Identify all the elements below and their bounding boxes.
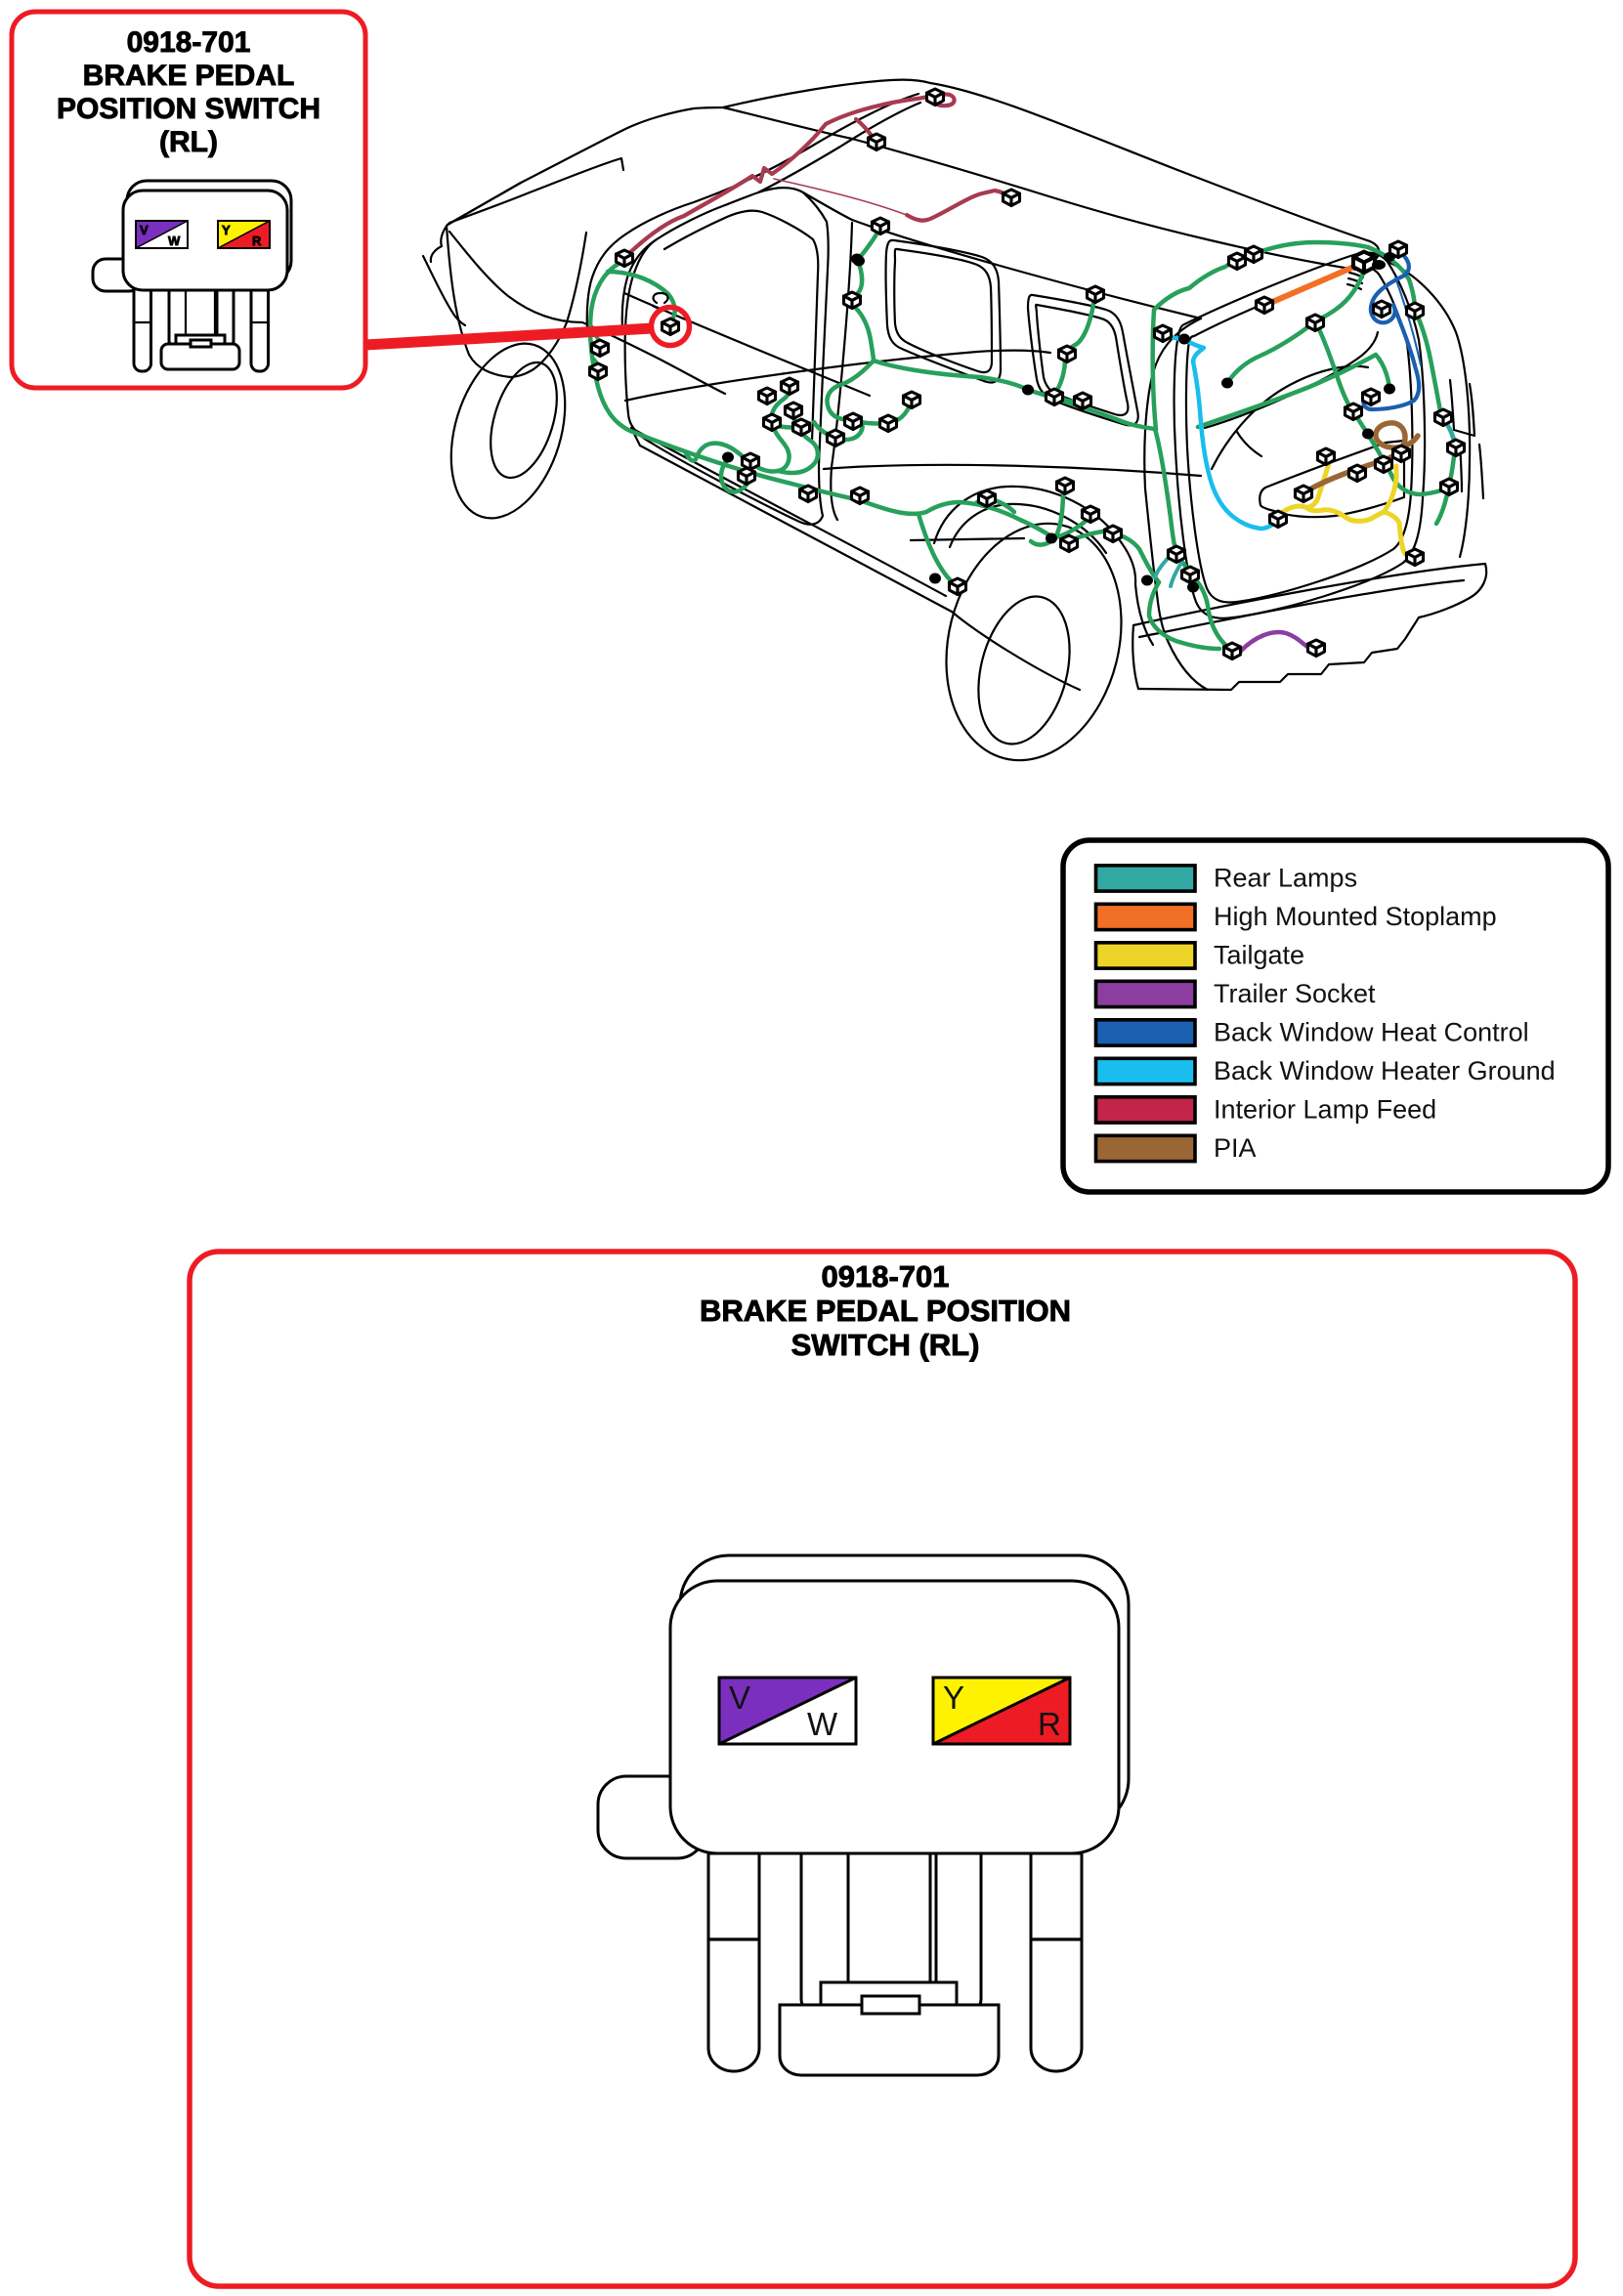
svg-text:SWITCH (RL): SWITCH (RL): [791, 1328, 980, 1362]
svg-text:V: V: [729, 1679, 750, 1716]
svg-text:R: R: [252, 234, 262, 248]
svg-text:0918-701: 0918-701: [127, 26, 251, 59]
svg-text:Back Window Heat Control: Back Window Heat Control: [1214, 1017, 1529, 1046]
svg-text:BRAKE PEDAL: BRAKE PEDAL: [83, 60, 295, 92]
svg-text:Rear Lamps: Rear Lamps: [1214, 863, 1357, 892]
svg-text:W: W: [807, 1706, 838, 1742]
svg-text:Y: Y: [943, 1679, 964, 1716]
svg-text:PIA: PIA: [1214, 1133, 1257, 1163]
svg-text:BRAKE PEDAL POSITION: BRAKE PEDAL POSITION: [700, 1294, 1071, 1328]
svg-text:Interior Lamp Feed: Interior Lamp Feed: [1214, 1094, 1436, 1124]
svg-text:High Mounted Stoplamp: High Mounted Stoplamp: [1214, 902, 1497, 931]
svg-text:POSITION SWITCH: POSITION SWITCH: [57, 93, 320, 125]
svg-text:Trailer Socket: Trailer Socket: [1214, 979, 1376, 1008]
svg-text:V: V: [140, 223, 149, 237]
svg-text:R: R: [1038, 1706, 1061, 1742]
svg-text:Tailgate: Tailgate: [1214, 940, 1304, 969]
svg-text:0918-701: 0918-701: [821, 1259, 949, 1294]
svg-text:(RL): (RL): [159, 126, 218, 158]
svg-text:Back Window Heater Ground: Back Window Heater Ground: [1214, 1056, 1556, 1085]
svg-text:Y: Y: [222, 223, 231, 237]
svg-text:W: W: [168, 234, 181, 248]
